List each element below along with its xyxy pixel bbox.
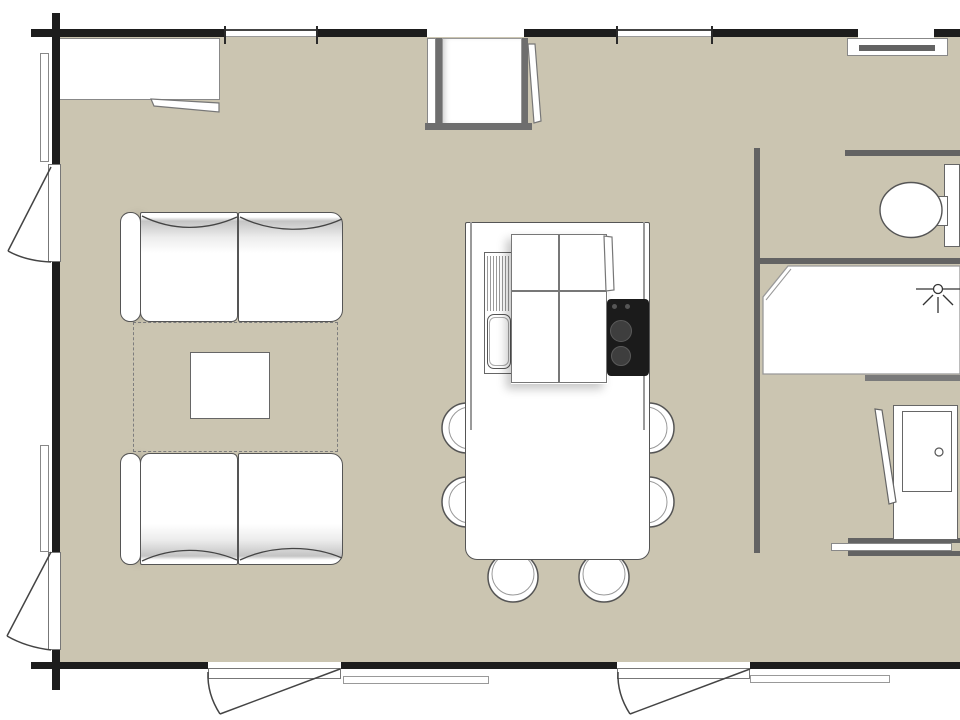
- wardrobe-knob: [935, 448, 943, 456]
- entry-door-jamb: [427, 38, 436, 126]
- wall-left-segment: [52, 650, 60, 690]
- wall-bottom-segment: [341, 662, 617, 669]
- door-swing: [7, 167, 750, 714]
- entry-door-sill: [425, 123, 532, 130]
- sofa-seam: [142, 550, 237, 561]
- window-tick: [316, 26, 318, 44]
- wall-top-segment: [933, 29, 960, 37]
- wall-top-segment: [318, 29, 427, 37]
- wall-top-segment: [524, 29, 617, 37]
- window-strip: [40, 53, 49, 162]
- sofa-seam: [142, 216, 237, 227]
- island-flap: [604, 236, 614, 291]
- entry-door-post: [522, 38, 528, 128]
- sofa-seam: [240, 217, 342, 229]
- window-tick: [616, 26, 618, 44]
- wardrobe-door-leaf: [875, 409, 896, 504]
- window-tick: [711, 26, 713, 44]
- wall-top-segment: [713, 29, 859, 37]
- sofa-seam: [240, 548, 342, 560]
- entry-door-panel: [442, 38, 522, 124]
- window-strip: [617, 29, 713, 37]
- cabinet-flap: [151, 99, 219, 112]
- wall-top-segment: [31, 29, 225, 37]
- wall-left-segment: [52, 262, 60, 552]
- window-tick: [224, 26, 226, 44]
- wall-bottom-segment: [750, 662, 960, 669]
- window-strip: [225, 29, 318, 37]
- window-glazing: [859, 45, 935, 51]
- floor-plan: [0, 0, 960, 720]
- window-opening: [858, 28, 934, 38]
- wall-left-segment: [52, 13, 60, 164]
- wall-bottom-segment: [31, 662, 208, 669]
- toilet-bowl: [880, 183, 942, 238]
- window-strip: [40, 445, 49, 552]
- shower-floor: [763, 266, 960, 374]
- entry-door-leaf: [528, 44, 541, 123]
